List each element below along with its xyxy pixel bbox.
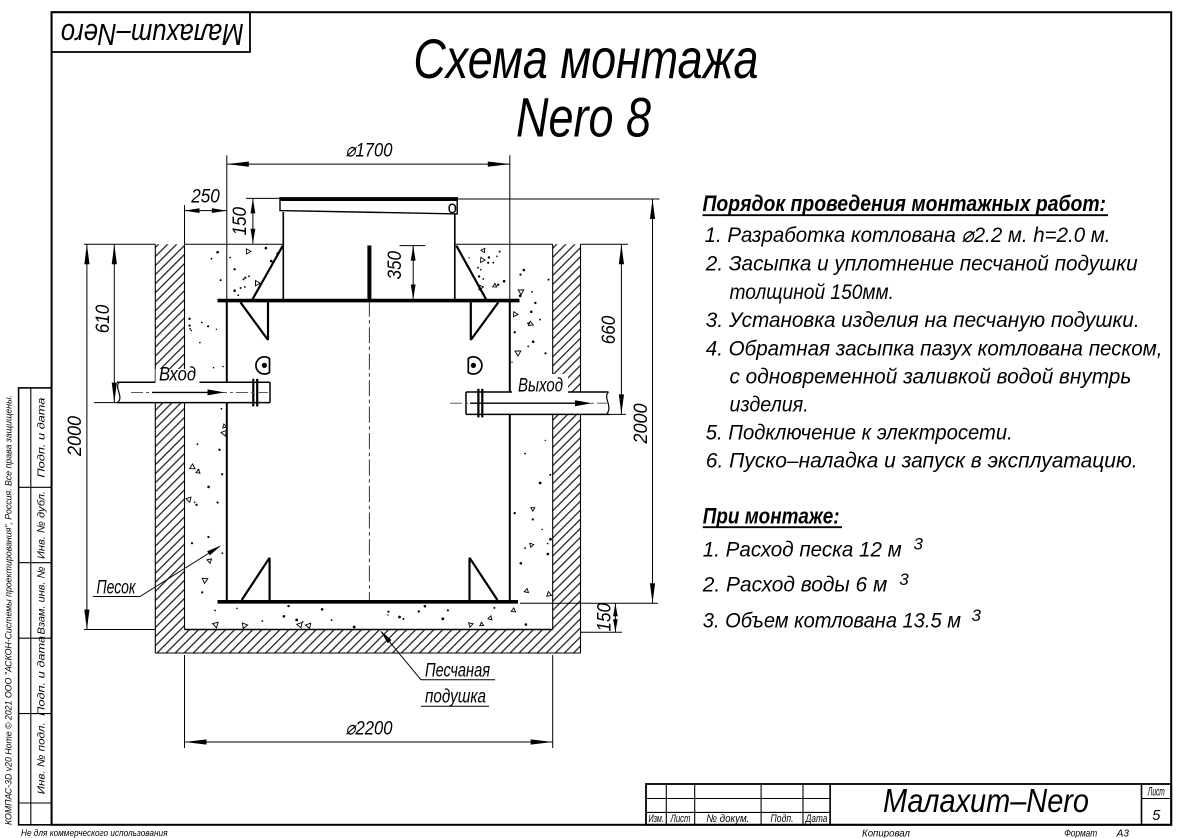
svg-text:3: 3 — [914, 535, 924, 554]
svg-text:5: 5 — [1152, 808, 1161, 824]
svg-text:660: 660 — [599, 315, 620, 344]
svg-text:Выход: Выход — [518, 374, 563, 396]
svg-text:Инв. № подл.: Инв. № подл. — [36, 722, 48, 794]
svg-text:1. Разработка котлована ⌀2.2 м: 1. Разработка котлована ⌀2.2 м. h=2.0 м. — [705, 223, 1111, 247]
svg-text:610: 610 — [93, 304, 114, 333]
svg-text:№ докум.: № докум. — [706, 813, 749, 825]
svg-text:4. Обратная засыпка пазух котл: 4. Обратная засыпка пазух котлована песк… — [706, 336, 1163, 360]
svg-text:Малахит–Nero: Малахит–Nero — [61, 17, 244, 52]
svg-text:3: 3 — [899, 570, 909, 589]
svg-text:Лист: Лист — [1147, 787, 1165, 799]
svg-text:350: 350 — [385, 251, 406, 280]
svg-text:3. Объем котлована 13.5 м: 3. Объем котлована 13.5 м — [703, 609, 961, 633]
svg-text:⌀2200: ⌀2200 — [346, 719, 393, 740]
svg-text:изделия.: изделия. — [730, 392, 809, 416]
svg-text:1. Расход песка 12 м: 1. Расход песка 12 м — [703, 537, 902, 561]
svg-text:2000: 2000 — [631, 403, 652, 444]
svg-text:Копировал: Копировал — [862, 827, 910, 838]
svg-text:Подп.: Подп. — [771, 813, 794, 825]
svg-text:2000: 2000 — [65, 416, 86, 457]
svg-text:3: 3 — [972, 606, 982, 625]
svg-text:Формат: Формат — [1064, 827, 1097, 838]
svg-text:Nero 8: Nero 8 — [516, 85, 651, 148]
svg-text:Не для коммерческого использов: Не для коммерческого использования — [21, 828, 168, 838]
svg-text:Песок: Песок — [97, 578, 137, 599]
svg-text:Взам. инв. №: Взам. инв. № — [36, 567, 48, 635]
svg-text:Вход: Вход — [159, 364, 196, 386]
svg-text:Песчаная: Песчаная — [425, 661, 490, 682]
svg-text:А3: А3 — [1116, 827, 1129, 838]
svg-text:⌀1700: ⌀1700 — [346, 141, 393, 162]
svg-text:Изм.: Изм. — [648, 813, 664, 825]
svg-text:150: 150 — [230, 207, 251, 236]
svg-text:Инв. № дубл.: Инв. № дубл. — [36, 491, 48, 559]
svg-text:При монтаже:: При монтаже: — [703, 503, 840, 528]
svg-text:3. Установка изделия на песчан: 3. Установка изделия на песчаную подушки… — [706, 308, 1140, 332]
svg-text:толщиной 150мм.: толщиной 150мм. — [730, 280, 895, 304]
svg-text:с одновременной заливкой водой: с одновременной заливкой водой внутрь — [730, 365, 1132, 389]
svg-text:КОМПАС-3D v20 Home © 2021 ООО: КОМПАС-3D v20 Home © 2021 ООО "АСКОН-Сис… — [4, 395, 14, 825]
svg-text:150: 150 — [595, 603, 616, 632]
svg-text:подушка: подушка — [425, 687, 486, 708]
svg-text:5. Подключение к электросети.: 5. Подключение к электросети. — [706, 420, 1013, 444]
svg-text:Схема монтажа: Схема монтажа — [413, 27, 758, 90]
svg-text:2. Засыпка и уплотнение песчан: 2. Засыпка и уплотнение песчаной подушки — [705, 252, 1138, 276]
svg-text:Подп. и дата: Подп. и дата — [36, 397, 48, 477]
svg-text:Малахит–Nero: Малахит–Nero — [883, 782, 1089, 819]
svg-text:Порядок проведения монтажных р: Порядок проведения монтажных работ: — [703, 191, 1107, 216]
svg-text:2. Расход воды 6 м: 2. Расход воды 6 м — [702, 573, 888, 597]
svg-text:6. Пуско–наладка и запуск в эк: 6. Пуско–наладка и запуск в эксплуатацию… — [706, 449, 1138, 473]
svg-text:250: 250 — [190, 186, 220, 207]
svg-text:Лист: Лист — [670, 813, 691, 825]
svg-text:Дата: Дата — [804, 813, 827, 825]
svg-text:Подп. и дата: Подп. и дата — [36, 636, 48, 716]
